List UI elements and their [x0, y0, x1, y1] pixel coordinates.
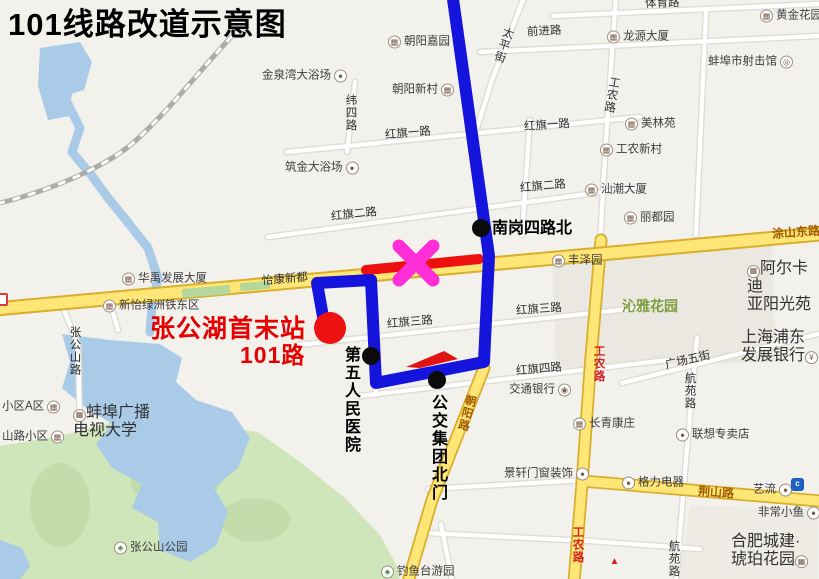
- map-label: 合肥城建· 琥珀花园▦: [731, 533, 808, 569]
- label-text: 红旗二路: [330, 206, 377, 223]
- building-icon: ▦: [51, 431, 64, 444]
- label-text: 航苑路: [683, 372, 695, 410]
- label-text: 艺流: [753, 484, 776, 497]
- map-label: ▦朝阳嘉园: [388, 36, 450, 49]
- map-label: ♣张公山公园: [114, 542, 188, 555]
- map-labels: 金泉湾大浴场●▦朝阳嘉园朝阳新村▦前进路太平街体育路▦龙源大厦▦黄金花园蚌埠市射…: [0, 0, 819, 579]
- map-label: 红旗四路: [516, 362, 563, 379]
- map-label: 体育路: [645, 0, 680, 11]
- map-label: 红旗二路: [520, 179, 567, 196]
- dot-icon: ●: [334, 70, 347, 83]
- label-text: 蚌埠广播 电视大学: [73, 404, 150, 439]
- label-text: 筑金大浴场: [285, 162, 343, 175]
- label-text: 101路: [240, 342, 305, 368]
- dot-icon: ●: [346, 162, 359, 175]
- label-terminus-route: 101路: [240, 343, 305, 369]
- label-text: 太平街: [492, 25, 515, 64]
- label-text: 钓鱼台游园: [397, 566, 455, 579]
- label-text: 红旗一路: [385, 126, 432, 142]
- map-label: ▦华禹发展大厦: [122, 273, 207, 286]
- label-text: 丰泽园: [568, 255, 603, 268]
- label-text: 蚌埠市射击馆: [708, 56, 777, 69]
- label-text: 涂山东路: [772, 224, 819, 241]
- map-label: 金泉湾大浴场●: [262, 70, 347, 83]
- building-icon: ▦: [607, 31, 620, 44]
- map-label: ▦丰泽园: [552, 255, 603, 268]
- label-text: 纬四路: [344, 94, 356, 132]
- label-text: 新怡绿洲铁东区: [119, 300, 200, 313]
- label-text: 丽都园: [640, 212, 675, 225]
- brand-icon: ▲: [608, 556, 621, 569]
- building-icon: ▦: [573, 418, 586, 431]
- label-text: 沁雅花园: [622, 298, 678, 314]
- map-canvas: 金泉湾大浴场●▦朝阳嘉园朝阳新村▦前进路太平街体育路▦龙源大厦▦黄金花园蚌埠市射…: [0, 0, 819, 579]
- label-gongjiao-jituan-beimen: 公交集团北门: [429, 394, 445, 502]
- map-label: ▦阿尔卡迪 亚阳光苑: [747, 260, 819, 314]
- label-text: 公交集团北门: [429, 394, 446, 502]
- label-text: 华禹发展大厦: [138, 273, 207, 286]
- map-label: 广场五街: [664, 350, 712, 373]
- label-text: 龙源大厦: [623, 31, 669, 44]
- building-icon: ▦: [795, 556, 808, 569]
- dot-icon: ●: [676, 429, 689, 442]
- road-number-badge-icon: [0, 293, 8, 311]
- map-label: 红旗三路: [387, 315, 434, 332]
- map-label: ♣钓鱼台游园: [381, 566, 455, 579]
- map-label: 红旗三路: [516, 302, 563, 318]
- map-label: 荆山路: [698, 485, 735, 501]
- label-nangang-silu-north: 南岗四路北: [492, 220, 572, 238]
- building-icon: ▦: [441, 84, 454, 97]
- map-label: ▦美林苑: [625, 118, 676, 131]
- label-text: 第五人民医院: [342, 346, 359, 454]
- label-text: 张公山公园: [130, 542, 188, 555]
- map-label: 朝阳新村▦: [392, 84, 454, 97]
- label-text: 黄金花园: [776, 10, 819, 23]
- map-label: 航苑路: [683, 372, 696, 410]
- building-icon: ▦: [103, 300, 116, 313]
- map-label: 怡康新都: [262, 272, 309, 289]
- building-icon: ▦: [747, 265, 760, 278]
- yuan-icon: ¥: [805, 352, 818, 365]
- label-text: 航苑路: [667, 540, 679, 578]
- building-icon: ▦: [585, 184, 598, 197]
- bank-icon: ◉: [558, 384, 571, 397]
- label-text: 交通银行: [509, 384, 555, 397]
- map-label: 小区A区▦: [2, 401, 60, 414]
- map-label: 红旗二路: [330, 206, 377, 224]
- label-text: 红旗二路: [520, 179, 567, 195]
- bank-brand-icon: c: [791, 478, 804, 491]
- map-label: 涂山东路: [772, 225, 819, 242]
- label-text: 南岗四路北: [492, 220, 572, 237]
- label-text: 红旗一路: [524, 118, 571, 133]
- map-label: 沁雅花园: [622, 299, 678, 315]
- label-text: 汕潮大厦: [601, 184, 647, 197]
- map-label: ▦龙源大厦: [607, 31, 669, 44]
- map-label: ▦蚌埠广播 电视大学: [73, 404, 150, 440]
- label-terminus: 张公湖首末站: [150, 315, 306, 343]
- map-label: 纬四路: [344, 94, 357, 132]
- building-icon: ▦: [122, 273, 135, 286]
- building-icon: ▦: [73, 409, 86, 422]
- map-label: 航苑路: [667, 540, 680, 578]
- map-label: 上海浦东 发展银行¥: [741, 329, 818, 365]
- map-label: 张公山路: [68, 326, 81, 376]
- bank-brand-icon: c: [791, 473, 804, 491]
- label-text: 朝阳嘉园: [404, 36, 450, 49]
- label-text: 红旗三路: [387, 315, 434, 331]
- building-icon: ▦: [552, 255, 565, 268]
- building-icon: ▦: [47, 401, 60, 414]
- map-label: 太平街: [491, 25, 515, 65]
- label-text: 工农路: [602, 75, 620, 114]
- map-label: 蚌埠市射击馆◎: [708, 56, 793, 69]
- label-text: 张公山路: [68, 326, 80, 376]
- dot-icon: ●: [807, 507, 819, 520]
- map-label: ▦丽都园: [624, 212, 675, 225]
- map-label: ▦新怡绿洲铁东区: [103, 300, 200, 313]
- label-text: 合肥城建· 琥珀花园: [731, 533, 800, 568]
- dot-icon: ●: [622, 477, 635, 490]
- label-text: 格力电器: [638, 477, 684, 490]
- label-text: 山路小区: [2, 431, 48, 444]
- brand-icon: ▲: [608, 551, 621, 569]
- label-text: 上海浦东 发展银行: [741, 329, 805, 364]
- label-text: 金泉湾大浴场: [262, 70, 331, 83]
- map-label: 艺流●: [753, 484, 792, 497]
- map-label: ▦长青康庄: [573, 418, 635, 431]
- label-text: 红旗三路: [516, 302, 563, 317]
- map-label: 非常小鱼●: [758, 507, 819, 520]
- building-icon: ▦: [760, 10, 773, 23]
- building-icon: ▦: [600, 144, 613, 157]
- label-text: 工农路: [592, 345, 604, 383]
- road-number-badge-icon: [0, 293, 8, 306]
- label-text: 前进路: [527, 25, 562, 39]
- label-text: 怡康新都: [262, 272, 309, 288]
- map-label: 筑金大浴场●: [285, 162, 359, 175]
- building-icon: ▦: [388, 36, 401, 49]
- map-label: ●联想专卖店: [676, 429, 750, 442]
- map-label: ▦黄金花园: [760, 10, 819, 23]
- building-icon: ▦: [625, 118, 638, 131]
- map-label: ▦工农新村: [600, 144, 662, 157]
- label-text: 小区A区: [2, 401, 44, 414]
- map-label: 交通银行◉: [509, 384, 571, 397]
- tree-icon: ♣: [381, 566, 394, 579]
- label-text: 红旗四路: [516, 362, 563, 378]
- map-label: ●格力电器: [622, 477, 684, 490]
- label-text: 景轩门窗装饰: [504, 468, 573, 481]
- label-text: 美林苑: [641, 118, 676, 131]
- map-label: 工农路: [592, 345, 605, 383]
- map-label: 红旗一路: [385, 126, 432, 143]
- label-diwu-renmin-yiyuan: 第五人民医院: [342, 346, 358, 454]
- map-label: 前进路: [527, 25, 562, 40]
- dot-icon: ●: [576, 468, 589, 481]
- map-label: 景轩门窗装饰●: [504, 468, 589, 481]
- target-icon: ◎: [780, 56, 793, 69]
- label-text: 荆山路: [698, 484, 735, 500]
- map-label: 朝阳路: [455, 393, 477, 433]
- label-text: 工农路: [571, 526, 583, 564]
- label-text: 非常小鱼: [758, 507, 804, 520]
- label-text: 联想专卖店: [692, 429, 750, 442]
- label-text: 体育路: [645, 0, 680, 10]
- label-text: 张公湖首末站: [150, 315, 306, 343]
- map-label: 工农路: [571, 526, 584, 564]
- tree-icon: ♣: [114, 542, 127, 555]
- page-title: 101线路改道示意图: [8, 8, 287, 43]
- map-label: 山路小区▦: [2, 431, 64, 444]
- map-label: 红旗一路: [524, 118, 571, 134]
- label-text: 朝阳新村: [392, 84, 438, 97]
- label-text: 广场五街: [664, 350, 712, 372]
- building-icon: ▦: [624, 212, 637, 225]
- map-label: 工农路: [601, 75, 620, 114]
- label-text: 工农新村: [616, 144, 662, 157]
- map-label: ▦汕潮大厦: [585, 184, 647, 197]
- label-text: 朝阳路: [456, 393, 477, 432]
- label-text: 长青康庄: [589, 418, 635, 431]
